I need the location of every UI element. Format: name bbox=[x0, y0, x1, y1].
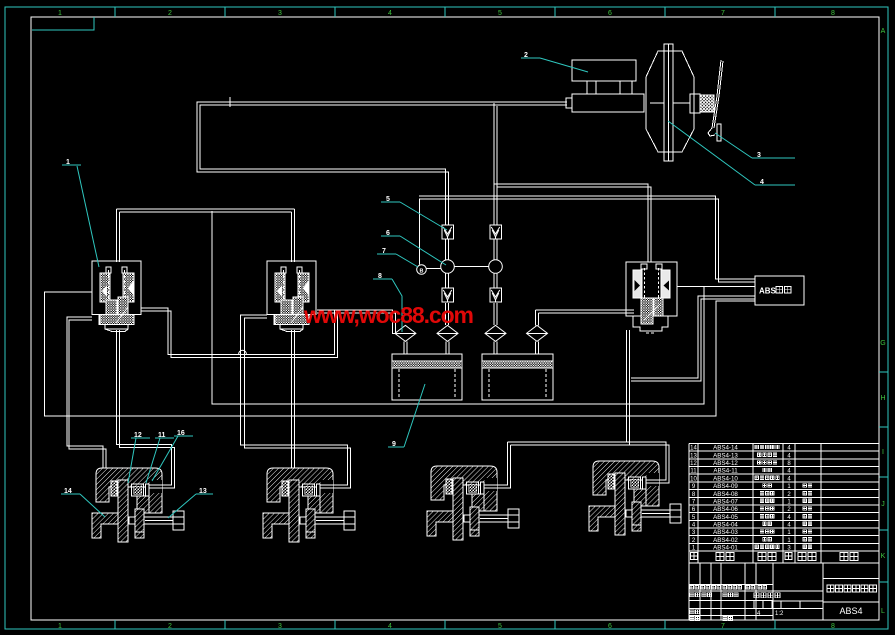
svg-text:3: 3 bbox=[278, 10, 282, 17]
svg-text:ABS4-01: ABS4-01 bbox=[713, 545, 738, 552]
svg-text:1: 1 bbox=[58, 10, 62, 17]
svg-text:www,woc88.com: www,woc88.com bbox=[303, 302, 474, 328]
svg-text:7: 7 bbox=[721, 623, 725, 630]
svg-text:1:2: 1:2 bbox=[775, 611, 784, 617]
svg-text:ABS4-12: ABS4-12 bbox=[713, 460, 738, 467]
svg-text:ABS4-03: ABS4-03 bbox=[713, 529, 738, 536]
svg-text:7: 7 bbox=[721, 10, 725, 17]
svg-text:ABS4-13: ABS4-13 bbox=[713, 452, 738, 459]
svg-text:G: G bbox=[880, 340, 885, 347]
svg-text:8: 8 bbox=[831, 10, 835, 17]
svg-text:H: H bbox=[880, 395, 885, 402]
svg-text:J: J bbox=[881, 501, 885, 508]
svg-text:A: A bbox=[881, 28, 886, 35]
svg-text:8: 8 bbox=[831, 623, 835, 630]
svg-text:ABS4-07: ABS4-07 bbox=[713, 499, 738, 506]
svg-text:ABS: ABS bbox=[759, 287, 777, 296]
svg-text:6: 6 bbox=[608, 10, 612, 17]
svg-text:14: 14 bbox=[690, 446, 697, 452]
svg-text:ABS4-11: ABS4-11 bbox=[713, 468, 738, 475]
svg-text:ABS4-09: ABS4-09 bbox=[713, 483, 738, 490]
svg-text:2: 2 bbox=[168, 10, 172, 17]
svg-text:B: B bbox=[420, 269, 424, 275]
svg-text:ABS4: ABS4 bbox=[839, 606, 862, 616]
svg-text:4: 4 bbox=[388, 623, 392, 630]
svg-text:5: 5 bbox=[498, 10, 502, 17]
svg-text:4: 4 bbox=[388, 10, 392, 17]
svg-text:5: 5 bbox=[498, 623, 502, 630]
svg-text:2: 2 bbox=[168, 623, 172, 630]
svg-text:3: 3 bbox=[278, 623, 282, 630]
svg-text:1: 1 bbox=[58, 623, 62, 630]
svg-text:I: I bbox=[882, 449, 884, 456]
svg-text:ABS4-08: ABS4-08 bbox=[713, 491, 738, 498]
svg-text:ABS4-10: ABS4-10 bbox=[713, 475, 738, 482]
svg-text:11: 11 bbox=[690, 469, 697, 475]
svg-text:13: 13 bbox=[690, 453, 697, 459]
svg-text:6: 6 bbox=[608, 623, 612, 630]
svg-text:L: L bbox=[881, 608, 885, 615]
svg-text:ABS4-04: ABS4-04 bbox=[713, 522, 738, 529]
svg-text:12: 12 bbox=[690, 461, 697, 467]
svg-text:ABS4-02: ABS4-02 bbox=[713, 537, 738, 544]
svg-text:ABS4-06: ABS4-06 bbox=[713, 506, 738, 513]
svg-text:10: 10 bbox=[690, 476, 697, 482]
svg-text:ABS4-14: ABS4-14 bbox=[713, 445, 738, 452]
svg-text:K: K bbox=[881, 553, 886, 560]
svg-text:ABS4-05: ABS4-05 bbox=[713, 514, 738, 521]
